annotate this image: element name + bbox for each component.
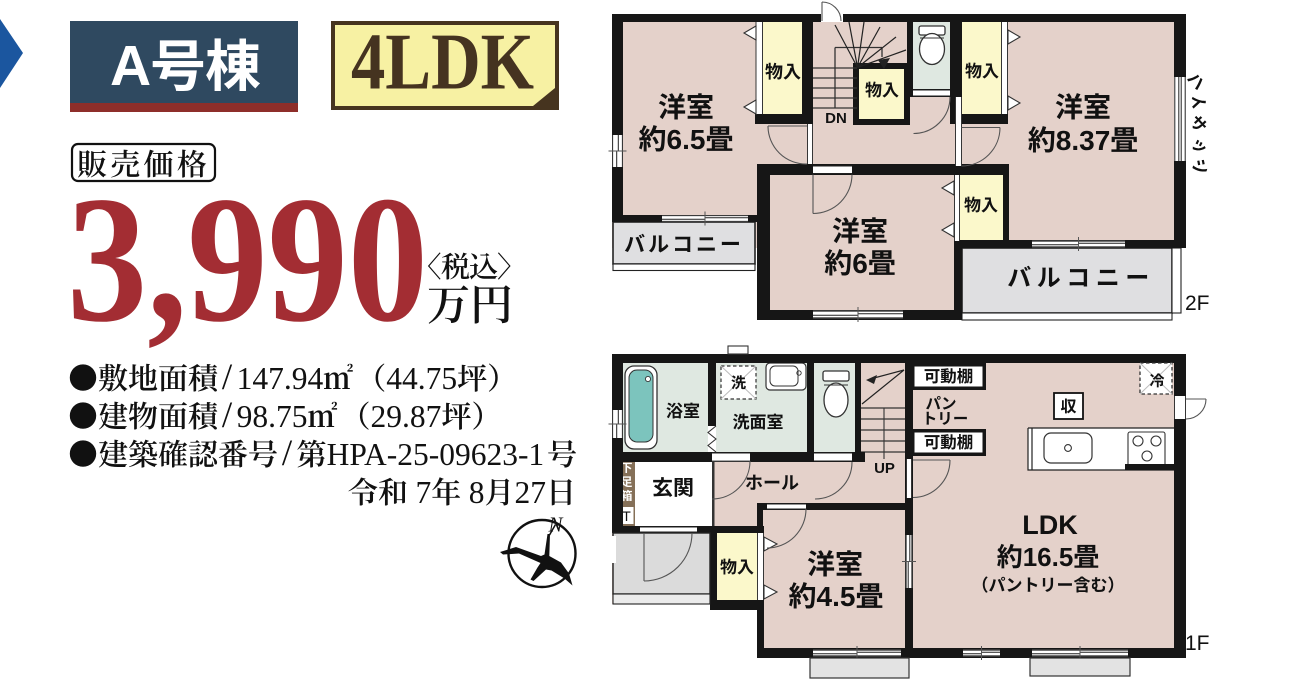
svg-text:44.75: 44.75 <box>386 361 457 396</box>
svg-text:3,990: 3,990 <box>67 160 428 360</box>
svg-text:16.5: 16.5 <box>1023 542 1074 572</box>
svg-text:/: / <box>222 357 233 398</box>
svg-text:/: / <box>282 433 293 474</box>
svg-text:6.5: 6.5 <box>667 124 706 155</box>
svg-text:29.87: 29.87 <box>371 399 442 434</box>
svg-text:1F: 1F <box>1185 632 1210 655</box>
svg-text:DN: DN <box>825 110 847 127</box>
svg-text:T: T <box>622 508 631 524</box>
svg-text:/: / <box>222 395 233 436</box>
svg-text:27: 27 <box>515 475 547 510</box>
svg-text:98.75: 98.75 <box>237 399 308 434</box>
svg-text:HPA-25-09623-1: HPA-25-09623-1 <box>327 437 545 472</box>
svg-text:8: 8 <box>469 475 485 510</box>
svg-text:A: A <box>110 34 151 98</box>
svg-text:4LDK: 4LDK <box>351 19 534 107</box>
svg-text:N: N <box>548 513 564 537</box>
svg-text:147.94: 147.94 <box>237 361 324 396</box>
svg-text:6: 6 <box>852 248 868 279</box>
svg-text:2F: 2F <box>1185 292 1210 315</box>
svg-text:8.37: 8.37 <box>1056 125 1111 156</box>
svg-text:7: 7 <box>416 475 432 510</box>
svg-text:4.5: 4.5 <box>817 581 856 612</box>
svg-text:LDK: LDK <box>1022 510 1078 540</box>
svg-text:UP: UP <box>874 460 895 477</box>
